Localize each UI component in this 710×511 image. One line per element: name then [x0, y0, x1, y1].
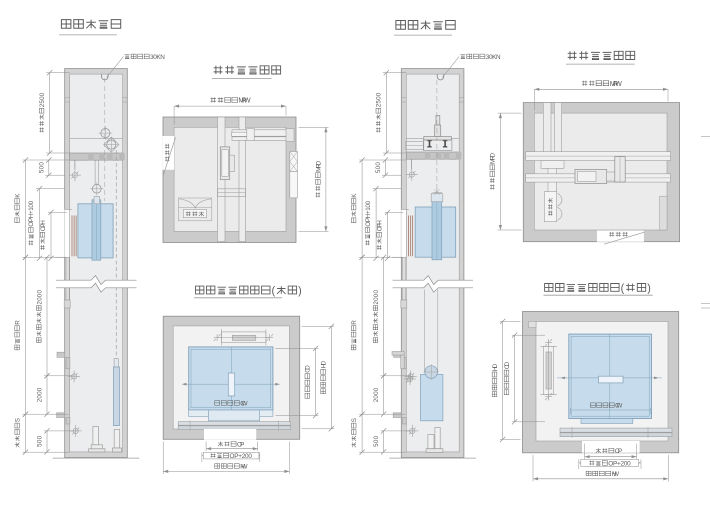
svg-text:CD: CD: [504, 361, 511, 369]
svg-text:500: 500: [39, 162, 46, 173]
svg-text:MRD: MRD: [490, 153, 497, 164]
svg-text:2500: 2500: [376, 92, 383, 107]
svg-text:OP: OP: [615, 448, 622, 455]
svg-text:500: 500: [375, 162, 382, 173]
svg-text:(: (: [621, 283, 625, 295]
svg-text:CW: CW: [240, 400, 248, 407]
svg-text:S: S: [15, 418, 22, 422]
svg-text:(: (: [272, 285, 276, 297]
svg-text:OPH: OPH: [377, 220, 384, 231]
svg-text:2000: 2000: [36, 290, 43, 305]
svg-text:OPH+100: OPH+100: [28, 200, 35, 226]
svg-text:2000: 2000: [373, 290, 380, 305]
svg-text:): ): [647, 283, 651, 295]
svg-text:MRW: MRW: [610, 81, 623, 88]
svg-text:500: 500: [373, 435, 380, 446]
svg-text:HW: HW: [612, 471, 620, 478]
svg-text:HD: HD: [321, 361, 328, 369]
svg-text:30KN: 30KN: [150, 54, 165, 61]
svg-text:OP: OP: [237, 441, 244, 448]
svg-text:HW: HW: [240, 463, 248, 470]
svg-text:MRW: MRW: [238, 98, 251, 105]
svg-text:R: R: [351, 320, 358, 325]
svg-text:CD: CD: [305, 365, 312, 373]
svg-text:500: 500: [36, 435, 43, 446]
svg-text:OP+200: OP+200: [230, 453, 253, 460]
svg-text:OPH+100: OPH+100: [365, 200, 372, 226]
svg-text:): ): [298, 285, 302, 297]
svg-text:30KN: 30KN: [486, 54, 501, 61]
svg-text:2500: 2500: [39, 92, 46, 107]
svg-text:HD: HD: [492, 363, 499, 371]
svg-text:MRD: MRD: [315, 160, 322, 171]
svg-text:2000: 2000: [373, 387, 380, 402]
svg-text:2000: 2000: [36, 387, 43, 402]
svg-text:OPH: OPH: [40, 220, 47, 231]
svg-text:R: R: [15, 320, 22, 325]
svg-text:OP+200: OP+200: [608, 460, 631, 467]
svg-text:CW: CW: [615, 403, 622, 410]
svg-text:S: S: [351, 418, 358, 422]
